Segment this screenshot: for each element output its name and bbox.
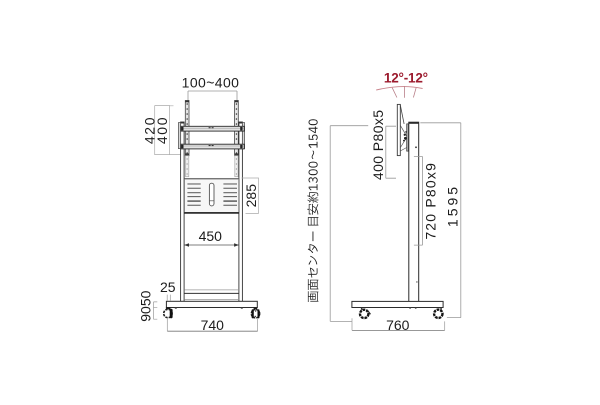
- svg-text:100~400: 100~400: [182, 75, 240, 91]
- svg-text:1595: 1595: [444, 184, 460, 227]
- svg-text:90: 90: [138, 306, 154, 322]
- svg-text:285: 285: [243, 184, 259, 208]
- svg-text:760: 760: [386, 317, 410, 333]
- svg-text:720 P80x9: 720 P80x9: [423, 162, 439, 240]
- svg-text:450: 450: [199, 228, 223, 244]
- svg-text:400 P80x5: 400 P80x5: [370, 110, 386, 181]
- svg-text:25: 25: [160, 279, 176, 295]
- svg-text:740: 740: [201, 317, 225, 333]
- svg-text:50: 50: [138, 290, 154, 306]
- svg-text:400: 400: [154, 116, 170, 144]
- svg-text:12°-12°: 12°-12°: [384, 70, 428, 85]
